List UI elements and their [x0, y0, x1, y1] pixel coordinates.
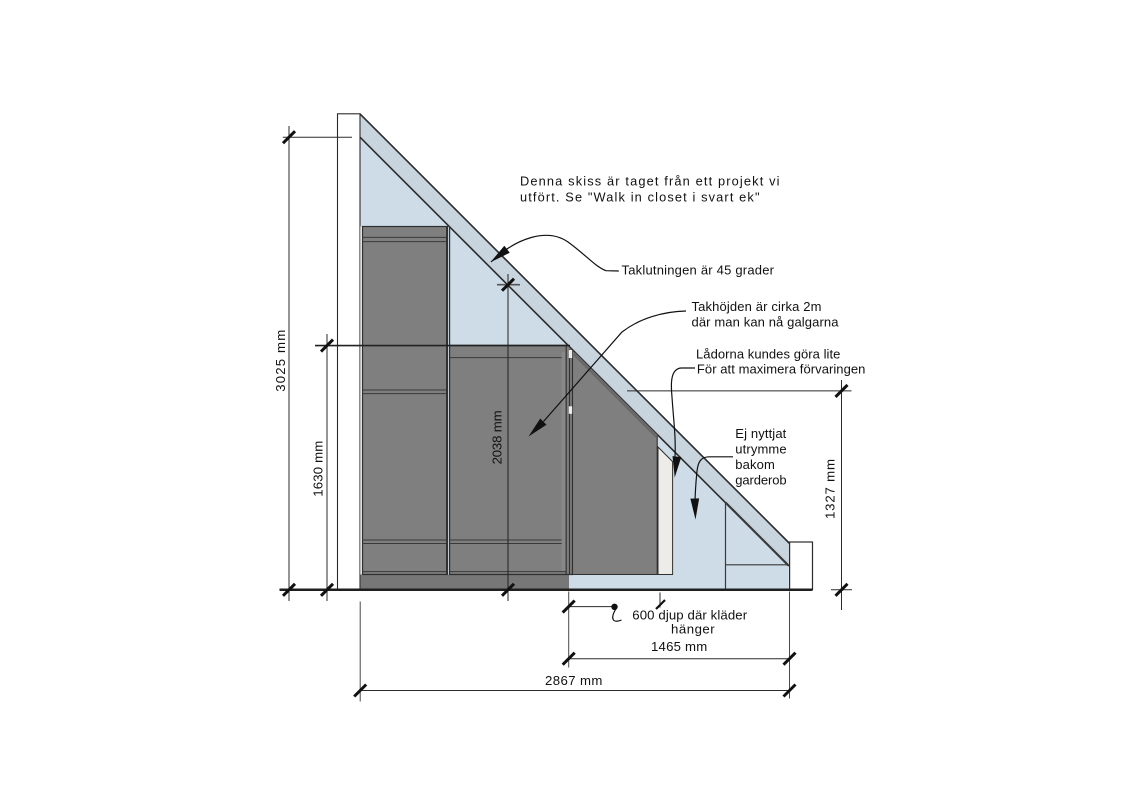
- svg-text:2038 mm: 2038 mm: [490, 410, 505, 464]
- svg-text:Lådorna kundes göra lite: Lådorna kundes göra lite: [696, 346, 840, 361]
- svg-text:Taklutningen är 45 grader: Taklutningen är 45 grader: [622, 262, 775, 277]
- svg-text:600 djup där kläder: 600 djup där kläder: [632, 608, 747, 623]
- svg-text:2867 mm: 2867 mm: [545, 673, 602, 688]
- svg-text:bakom: bakom: [735, 457, 775, 472]
- svg-text:Takhöjden är cirka 2m: Takhöjden är cirka 2m: [692, 299, 822, 314]
- svg-text:där man kan nå galgarna: där man kan nå galgarna: [692, 315, 840, 330]
- svg-text:3025 mm: 3025 mm: [273, 330, 288, 392]
- svg-text:garderob: garderob: [735, 473, 786, 488]
- svg-text:1630 mm: 1630 mm: [311, 441, 326, 497]
- svg-text:utfört. Se "Walk in closet i s: utfört. Se "Walk in closet i svart ek": [520, 189, 760, 204]
- svg-text:hänger: hänger: [671, 621, 715, 636]
- svg-text:1465 mm: 1465 mm: [651, 639, 707, 654]
- svg-text:För att maximera förvaringen: För att maximera förvaringen: [697, 361, 866, 376]
- svg-text:Denna skiss är taget från ett: Denna skiss är taget från ett projekt vi: [520, 174, 780, 189]
- svg-text:1327 mm: 1327 mm: [823, 459, 838, 519]
- svg-text:Ej nyttjat: Ej nyttjat: [735, 426, 786, 441]
- svg-text:utrymme: utrymme: [735, 442, 786, 457]
